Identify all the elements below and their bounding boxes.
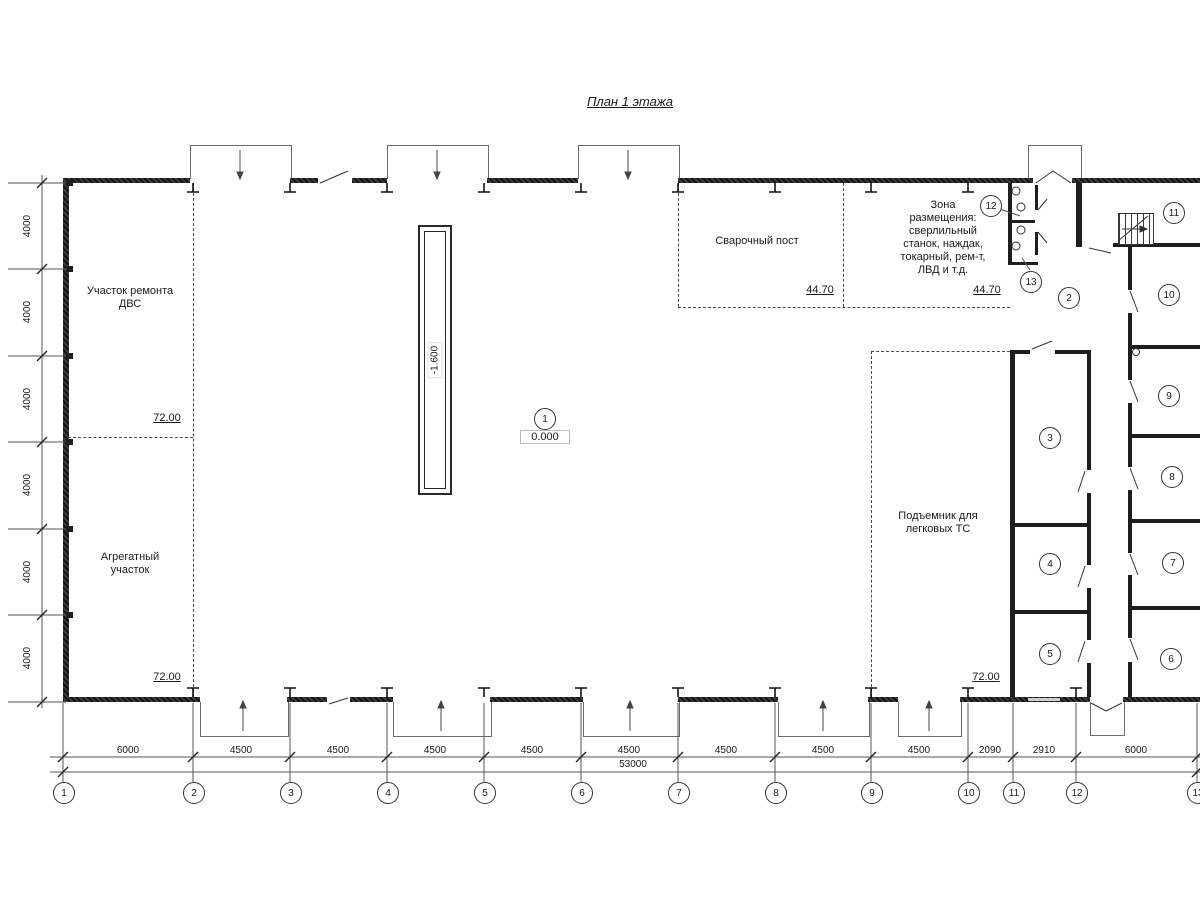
room-number-10: 10 <box>1158 284 1180 306</box>
axis-circle-7: 7 <box>668 782 690 804</box>
room-number-2: 2 <box>1058 287 1080 309</box>
area-label-engine-repair: 72.00 <box>142 412 192 424</box>
room-number-7: 7 <box>1162 552 1184 574</box>
axis-circle-11: 11 <box>1003 782 1025 804</box>
room-number-11: 11 <box>1163 202 1185 224</box>
dim-7-8: 4500 <box>704 745 748 756</box>
dim-3-4: 4500 <box>316 745 360 756</box>
dim-left-6: 4000 <box>22 638 34 678</box>
ground-elevation-label: 0.000 <box>520 430 570 444</box>
dim-1-2: 6000 <box>106 745 150 756</box>
room-number-5: 5 <box>1039 643 1061 665</box>
room-number-1: 1 <box>534 408 556 430</box>
dim-9-10: 4500 <box>897 745 941 756</box>
room-number-13: 13 <box>1020 271 1042 293</box>
room-number-12: 12 <box>980 195 1002 217</box>
dim-5-6: 4500 <box>510 745 554 756</box>
axis-circle-1: 1 <box>53 782 75 804</box>
dim-8-9: 4500 <box>801 745 845 756</box>
axis-circle-3: 3 <box>280 782 302 804</box>
page-title: План 1 этажа <box>530 94 730 109</box>
dim-left-5: 4000 <box>22 552 34 592</box>
dim-11-12: 2910 <box>1022 745 1066 756</box>
dim-left-2: 4000 <box>22 292 34 332</box>
axis-circle-12: 12 <box>1066 782 1088 804</box>
room-label-welding: Сварочный пост <box>697 235 817 248</box>
room-number-3: 3 <box>1039 427 1061 449</box>
room-label-car-lift: Подъемник для легковых ТС <box>878 510 998 536</box>
room-label-aggregate: Агрегатный участок <box>70 551 190 577</box>
area-label-welding: 44.70 <box>795 284 845 296</box>
room-number-9: 9 <box>1158 385 1180 407</box>
dim-12-13: 6000 <box>1114 745 1158 756</box>
dim-left-4: 4000 <box>22 465 34 505</box>
dim-left-3: 4000 <box>22 379 34 419</box>
axis-circle-2: 2 <box>183 782 205 804</box>
dim-6-7: 4500 <box>607 745 651 756</box>
axis-circle-5: 5 <box>474 782 496 804</box>
axis-circle-6: 6 <box>571 782 593 804</box>
room-number-6: 6 <box>1160 648 1182 670</box>
area-label-aggregate: 72.00 <box>142 671 192 683</box>
drawing-lines-layer <box>0 0 1200 900</box>
axis-circle-10: 10 <box>958 782 980 804</box>
axis-circle-9: 9 <box>861 782 883 804</box>
floor-plan: План 1 этажа <box>0 0 1200 900</box>
dim-10-11: 2090 <box>968 745 1012 756</box>
area-label-car-lift: 72.00 <box>961 671 1011 683</box>
room-label-engine-repair: Участок ремонта ДВС <box>70 285 190 311</box>
dim-2-3: 4500 <box>219 745 263 756</box>
axis-circle-8: 8 <box>765 782 787 804</box>
room-number-4: 4 <box>1039 553 1061 575</box>
dim-total: 53000 <box>611 759 655 770</box>
dim-4-5: 4500 <box>413 745 457 756</box>
axis-circle-4: 4 <box>377 782 399 804</box>
room-number-8: 8 <box>1161 466 1183 488</box>
area-label-equipment-zone: 44.70 <box>962 284 1012 296</box>
dim-left-1: 4000 <box>22 206 34 246</box>
